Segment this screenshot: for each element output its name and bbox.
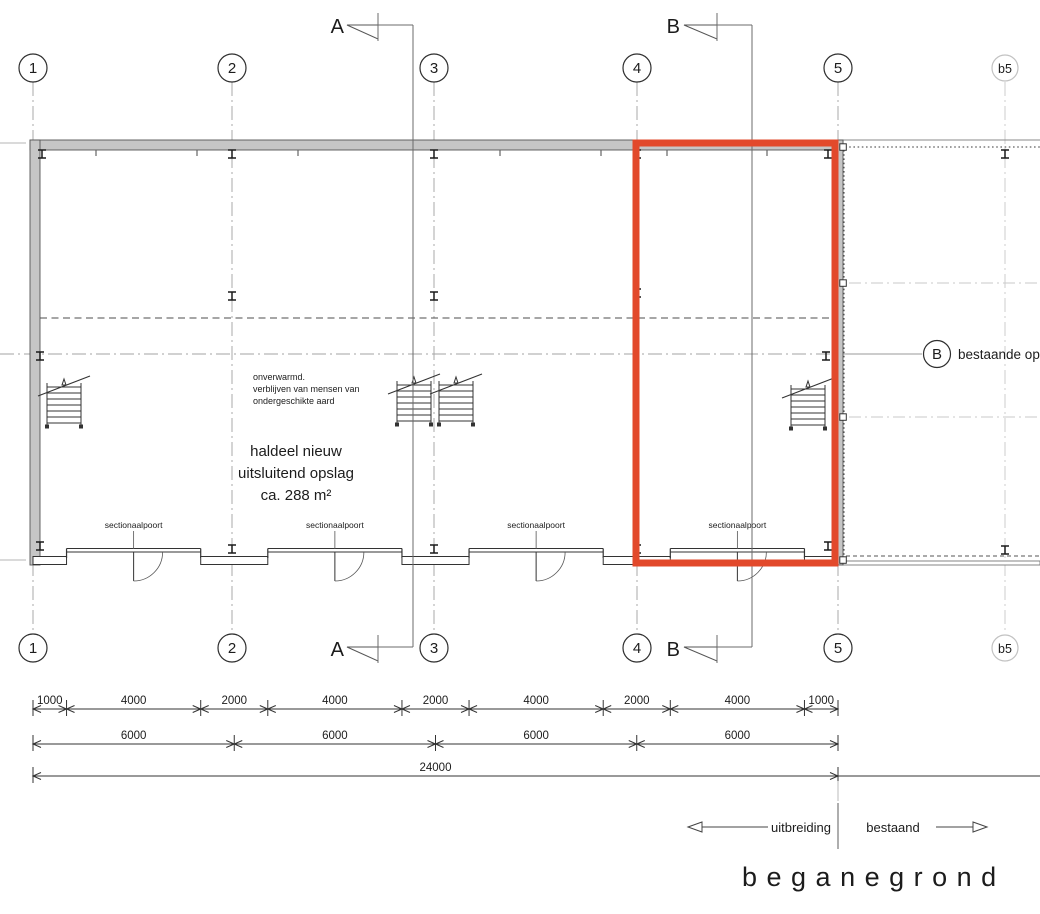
dimension-label: 4000 (725, 695, 751, 707)
steel-column-icon (824, 150, 832, 158)
section-a-label-bottom: A (331, 639, 345, 661)
bottom-wall-pier (33, 557, 67, 565)
legend-left-label: uitbreiding (771, 820, 831, 835)
room-name-line1: haldeel nieuw (250, 443, 342, 460)
dimension-row: 100040002000400020004000200040001000 (33, 695, 838, 716)
door-swing-arc (134, 552, 163, 581)
steel-column-icon (430, 150, 438, 158)
grid-bubble-label: 2 (228, 60, 236, 77)
steel-column-icon (824, 542, 832, 550)
dimension-label: 1000 (808, 695, 834, 707)
existing-annotation: B bestaande ops (846, 341, 1040, 368)
top-wall-joint-ticks (96, 151, 767, 157)
dimension-label: 6000 (725, 730, 751, 742)
dimension-label: 1000 (37, 695, 63, 707)
stairs (38, 374, 834, 430)
bottom-wall-pier (201, 557, 268, 565)
grid-lines (33, 82, 1005, 634)
sectional-door: sectionaalpoort (67, 520, 201, 581)
legend-left-arrow (688, 822, 702, 832)
stair-direction-arrow (454, 377, 458, 383)
door-label: sectionaalpoort (507, 520, 565, 530)
dimension-label: 6000 (322, 730, 348, 742)
wall-node-square (840, 280, 847, 287)
stair-direction-arrow (806, 381, 810, 387)
steel-column-icon (228, 545, 236, 553)
dimension-row: 6000600060006000 (33, 730, 838, 751)
door-label: sectionaalpoort (709, 520, 767, 530)
steel-column-icon (228, 150, 236, 158)
section-b-label-top: B (667, 16, 680, 38)
room-name-line2: uitsluitend opslag (238, 465, 354, 482)
floorplan-drawing: sectionaalpoortsectionaalpoortsectionaal… (0, 0, 1040, 914)
extension-existing-legend: uitbreiding bestaand (688, 781, 987, 849)
grid-bubble-5-bottom: 5 (824, 634, 852, 662)
room-note-line3: ondergeschikte aard (253, 396, 335, 406)
sectional-door: sectionaalpoort (670, 520, 804, 581)
room-annotations: onverwarmd. verblijven van mensen van on… (238, 372, 360, 504)
existing-bottom-wall (843, 561, 1040, 565)
grid-bubble-label: 2 (228, 640, 236, 657)
door-swing-arc (335, 552, 364, 581)
highlight-extension-outline (636, 143, 835, 563)
existing-building-lines (0, 140, 1040, 565)
existing-annotation-bubble-label: B (932, 346, 942, 363)
dimension-label: 2000 (423, 695, 449, 707)
grid-bubble-2-bottom: 2 (218, 634, 246, 662)
grid-bubble-label: 3 (430, 640, 438, 657)
dimension-row: 24000 (33, 762, 1040, 783)
dimension-rows: 1000400020004000200040002000400010006000… (33, 695, 1040, 783)
dimension-label: 4000 (523, 695, 549, 707)
bottom-wall-pier (402, 557, 469, 565)
grid-bubble-1-top: 1 (19, 54, 47, 82)
new-hall-walls (30, 140, 843, 565)
grid-bubble-label: 3 (430, 60, 438, 77)
section-a-top-flag (347, 13, 413, 41)
section-b-bottom-flag (684, 635, 752, 663)
wall-node-square (840, 144, 847, 151)
bottom-wall-and-doors: sectionaalpoortsectionaalpoortsectionaal… (33, 520, 838, 581)
steel-column-icon (228, 292, 236, 300)
grid-bubble-1-bottom: 1 (19, 634, 47, 662)
grid-bubble-2-top: 2 (218, 54, 246, 82)
sectional-door: sectionaalpoort (469, 520, 603, 581)
grid-bubble-label: b5 (998, 62, 1012, 76)
section-b-top-flag (684, 13, 752, 41)
steel-column-icon (430, 292, 438, 300)
grid-bubble-label: 1 (29, 640, 37, 657)
grid-bubble-4-top: 4 (623, 54, 651, 82)
legend-right-label: bestaand (866, 820, 920, 835)
wall-node-square (840, 557, 847, 564)
dimension-label: 6000 (121, 730, 147, 742)
existing-annotation-text: bestaande ops (958, 347, 1040, 362)
room-note-line1: onverwarmd. (253, 372, 305, 382)
stair-symbol (388, 374, 440, 426)
stair-symbol (38, 376, 90, 428)
grid-bubble-label: 5 (834, 60, 842, 77)
grid-bubble-5-top: 5 (824, 54, 852, 82)
stair-symbol (782, 378, 834, 430)
drawing-title: beganegrond (742, 862, 1006, 892)
grid-bubble-b5-top: b5 (992, 55, 1018, 81)
door-swing-arc (536, 552, 565, 581)
wall-node-square (840, 414, 847, 421)
dimension-label: 2000 (221, 695, 247, 707)
section-a-bottom-flag (347, 635, 413, 663)
room-note-line2: verblijven van mensen van (253, 384, 360, 394)
grid-bubble-4-bottom: 4 (623, 634, 651, 662)
grid-bubble-label: 4 (633, 60, 641, 77)
dimension-label: 4000 (322, 695, 348, 707)
grid-bubble-3-top: 3 (420, 54, 448, 82)
floorplan-page: sectionaalpoortsectionaalpoortsectionaal… (0, 0, 1040, 914)
stair-direction-arrow (62, 379, 66, 385)
stair-symbol (430, 374, 482, 426)
room-name-line3: ca. 288 m² (261, 487, 332, 504)
door-label: sectionaalpoort (306, 520, 364, 530)
steel-column-icon (1001, 150, 1009, 158)
dimension-label: 4000 (121, 695, 147, 707)
steel-columns (36, 150, 1009, 554)
dimension-label: 6000 (523, 730, 549, 742)
grid-bubble-label: 5 (834, 640, 842, 657)
grid-bubble-label: 1 (29, 60, 37, 77)
steel-column-icon (430, 545, 438, 553)
legend-right-arrow (973, 822, 987, 832)
section-a-label-top: A (331, 16, 345, 38)
door-label: sectionaalpoort (105, 520, 163, 530)
grid-bubble-3-bottom: 3 (420, 634, 448, 662)
grid-bubble-b5-bottom: b5 (992, 635, 1018, 661)
sectional-door: sectionaalpoort (268, 520, 402, 581)
dimension-label: 24000 (420, 762, 452, 774)
grid-bubble-label: 4 (633, 640, 641, 657)
grid-bubble-label: b5 (998, 642, 1012, 656)
steel-column-icon (1001, 546, 1009, 554)
steel-column-icon (822, 352, 830, 360)
section-b-label-bottom: B (667, 639, 680, 661)
dimension-label: 2000 (624, 695, 650, 707)
